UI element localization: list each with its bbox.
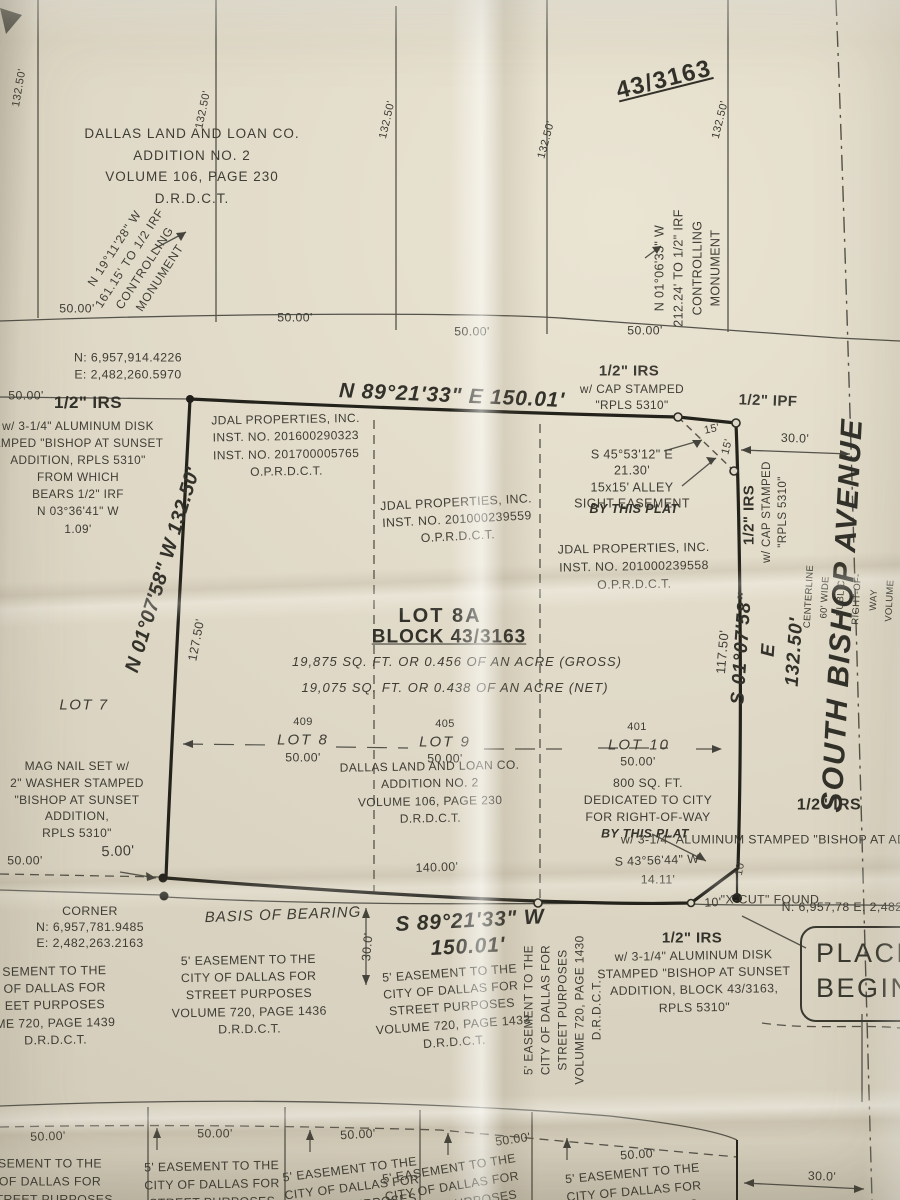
lot8-dim: 50.00' <box>285 749 321 766</box>
irs-mid-title: 1/2" IRS <box>599 360 659 381</box>
bottom-dim-30: 30.0' <box>808 1168 837 1186</box>
irs-se-right-note: w/ 3-1/4" ALUMINUM STAMPED "BISHOP AT AD… <box>621 831 900 848</box>
lot10-dim: 50.00' <box>620 753 656 770</box>
dim-15-a: 15' <box>703 421 721 440</box>
mag-nail-note: MAG NAIL SET w/ 2" WASHER STAMPED "BISHO… <box>10 758 144 842</box>
survey-plat-photo: DALLAS LAND AND LOAN CO. ADDITION NO. 2 … <box>0 0 900 1200</box>
irs-west-title: 1/2" IRS <box>54 391 122 415</box>
dim-50-sw: 50.00' <box>7 852 43 869</box>
lot8-name: LOT 8 <box>277 729 329 750</box>
upper-addition-label: DALLAS LAND AND LOAN CO. ADDITION NO. 2 … <box>84 123 299 209</box>
center-addition-note: DALLAS LAND AND LOAN CO. ADDITION NO. 2 … <box>340 757 521 830</box>
south-bearing-distance: 150.01' <box>430 930 506 964</box>
irs-east-title: 1/2" IRS <box>738 485 759 545</box>
dim-5: 5.00' <box>101 841 135 863</box>
sw-corner-coordinates: CORNER N: 6,957,781.9485 E: 2,482,263.21… <box>36 904 144 952</box>
irs-east-note: w/ CAP STAMPED "RPLS 5310" <box>759 461 791 563</box>
ne-controlling-monument-note: N 01°06'33" W 212.24' TO 1/2" IRF CONTRO… <box>651 209 726 327</box>
dim-50-2: 50.00' <box>277 309 313 326</box>
dim-50-3: 50.00' <box>454 323 490 340</box>
jdal-mid-note: JDAL PROPERTIES, INC. INST. NO. 20100023… <box>380 490 534 549</box>
alley-by-this-plat: BY THIS PLAT <box>589 501 678 519</box>
place-of-beginning-box: PLACE BEGIN <box>800 926 900 1022</box>
xcut-found-label: "X-CUT" FOUND <box>721 892 820 909</box>
row-dedication-note: 800 SQ. FT. DEDICATED TO CITY FOR RIGHT-… <box>584 775 712 827</box>
easement-1433-note: 5' EASEMENT TO THE CITY OF DALLAS FOR ST… <box>372 960 533 1057</box>
dim-10-vertical: 10' <box>732 859 750 877</box>
ipf-label: 1/2" IPF <box>738 389 797 412</box>
bottom-dim-50-5: 50.00' <box>620 1145 657 1165</box>
bottom-dim-50-1: 50.00' <box>30 1128 66 1147</box>
jdal-ne-note: JDAL PROPERTIES, INC. INST. NO. 20100023… <box>558 539 711 595</box>
parcel-area-gross: 19,875 SQ. FT. OR 0.456 OF AN ACRE (GROS… <box>292 653 622 671</box>
irs-se-title: 1/2" IRS <box>662 927 722 948</box>
lot-7-label: LOT 7 <box>59 694 108 715</box>
parcel-title-block: BLOCK 43/3163 <box>372 625 527 652</box>
dim-30-top: 30.0' <box>781 430 810 448</box>
dim-50-west: 50.00' <box>8 387 44 404</box>
bottom-easement-1: 5' EASEMENT TO THE CITY OF DALLAS FOR ST… <box>144 1157 280 1200</box>
dim-30-south: 30.0' <box>358 932 378 962</box>
bottom-easement-cut: SEMENT TO THE OF DALLAS FOR STREET PURPO… <box>0 1155 113 1200</box>
bottom-dim-50-3: 50.00' <box>340 1125 376 1144</box>
irs-se-note: w/ 3-1/4" ALUMINUM DISK STAMPED "BISHOP … <box>597 946 791 1018</box>
irs-se-right-title: 1/2" IRS <box>797 795 861 818</box>
dim-50-1: 50.00' <box>59 300 95 317</box>
east-bearing-label: S 01°07'58" E 132.50' <box>725 582 814 718</box>
dim-140: 140.00' <box>415 859 458 878</box>
sw-easement-note: SEMENT TO THE OF DALLAS FOR EET PURPOSES… <box>0 962 116 1050</box>
jdal-nw-note: JDAL PROPERTIES, INC. INST. NO. 20160029… <box>211 410 361 482</box>
se-clip-distance: 14.11' <box>641 871 676 888</box>
irs-mid-note: w/ CAP STAMPED "RPLS 5310" <box>580 382 684 414</box>
irs-west-note: w/ 3-1/4" ALUMINUM DISK AMPED "BISHOP AT… <box>0 418 163 538</box>
parcel-area-net: 19,075 SQ. FT. OR 0.438 OF AN ACRE (NET) <box>301 679 608 697</box>
dim-10-horizontal: 10' <box>704 894 722 912</box>
bottom-dim-50-2: 50.00' <box>197 1125 233 1142</box>
nw-corner-coordinates: N: 6,957,914.4226 E: 2,482,260.5970 <box>74 349 182 382</box>
street-row-note: CENTERLINE 60' WIDE PUBLIC RIGHT-OF-WAY … <box>800 565 900 636</box>
easement-1430-note: 5' EASEMENT TO THE CITY OF DALLAS FOR ST… <box>520 935 605 1084</box>
se-clip-bearing: S 43°56'44" W <box>614 851 699 871</box>
easement-1436-note: 5' EASEMENT TO THE CITY OF DALLAS FOR ST… <box>171 951 328 1040</box>
